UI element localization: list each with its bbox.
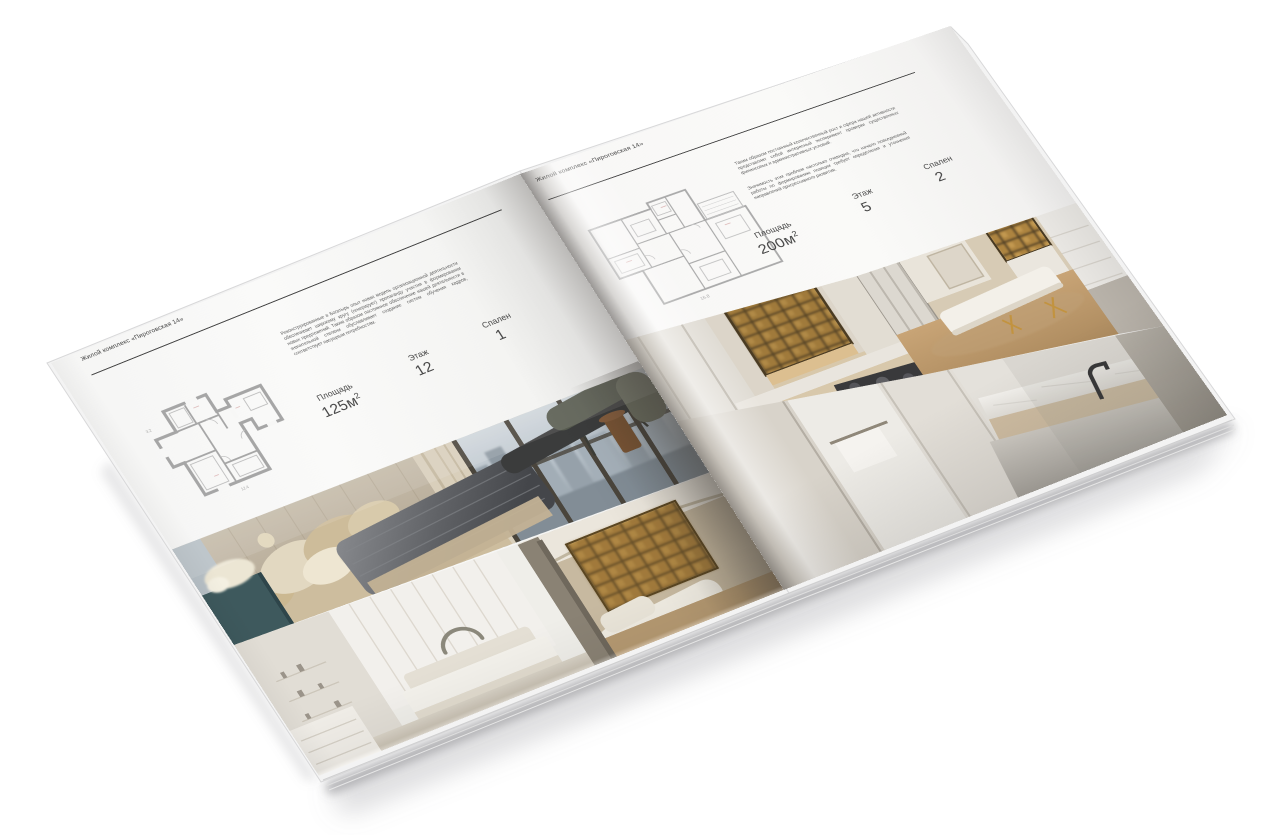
svg-text:12.4: 12.4 [240,484,251,491]
svg-text:3.2: 3.2 [145,428,154,435]
svg-text:16.8: 16.8 [699,293,711,301]
